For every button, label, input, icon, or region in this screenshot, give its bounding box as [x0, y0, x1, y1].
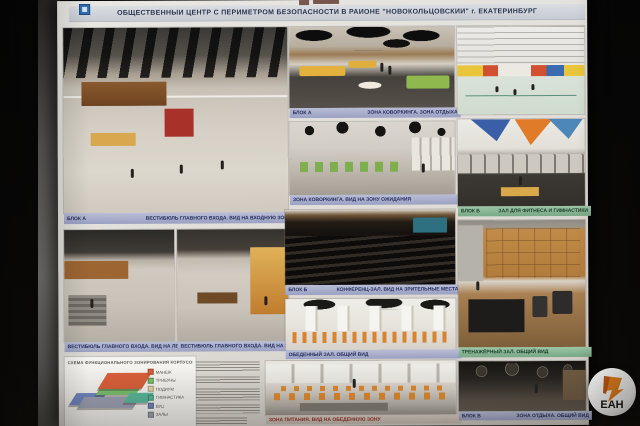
black-mat: [469, 299, 525, 332]
render-lobby-main: [63, 27, 288, 213]
green-sofa: [407, 75, 450, 89]
photo-frame: ОБЩЕСТВЕННЫЙ ЦЕНТР С ПЕРИМЕТРОМ БЕЗОПАСН…: [0, 0, 640, 426]
window-wall: [266, 364, 456, 383]
caption-coworking: БЛОК А ЗОНА КОВОРКИНГА. ЗОНА ОТДЫХА: [290, 107, 461, 118]
seat-rows: [285, 235, 455, 285]
render-cafeteria: [266, 360, 456, 415]
person-silhouette: [388, 66, 391, 75]
staircase: [69, 295, 107, 327]
caption-lobby-main: БЛОК А ВЕСТИБЮЛЬ ГЛАВНОГО ВХОДА. ВИД НА …: [64, 212, 294, 224]
person-silhouette: [180, 164, 183, 173]
reception-counter: [91, 133, 136, 146]
orange-chairs: [281, 385, 444, 391]
gray-wall: [458, 225, 484, 281]
block-label: БЛОК Б: [288, 287, 307, 293]
caption-auditorium: БЛОК Б КОНФЕРЕНЦ-ЗАЛ. ВИД НА ЗРИТЕЛЬНЫЕ …: [285, 284, 461, 295]
ceiling-panels: [63, 27, 287, 78]
window-wall: [458, 154, 585, 174]
render-coworking: [289, 26, 454, 108]
person-silhouette: [535, 384, 538, 393]
person-silhouette: [422, 164, 425, 173]
functional-scheme-panel: СХЕМА ФУНКЦИОНАЛЬНОГО ЗОНИРОВАНИЯ КОРПУС…: [65, 357, 196, 426]
render-lobby-stairs: [64, 230, 174, 342]
person-silhouette: [380, 63, 383, 72]
description-text-block: [196, 361, 260, 426]
legend-item: ГИМНАСТИКА: [148, 394, 192, 400]
ean-text: ЕАН: [600, 399, 623, 411]
caption-text: ЗОНА ПИТАНИЯ. ВИД НА ОБЕДЕННУЮ ЗОНУ: [269, 416, 381, 422]
ceiling-clouds: [289, 26, 454, 51]
paragraph: [196, 361, 260, 372]
exercise-machine: [532, 296, 547, 316]
color-banners: [457, 65, 584, 77]
wood-wall: [64, 261, 128, 279]
legend-swatch: [148, 403, 154, 409]
red-kiosk: [164, 109, 193, 137]
exercise-machine: [552, 291, 572, 314]
window-wall: [412, 137, 455, 170]
wood-panel-wall: [486, 227, 580, 278]
caption-gym: ТРЕНАЖЁРНЫЙ ЗАЛ. ОБЩИЙ ВИД: [459, 347, 592, 358]
render-auditorium: [285, 209, 455, 285]
person-silhouette: [221, 161, 224, 170]
ceiling-mural-triangle: [549, 119, 583, 139]
tape-mark: [299, 0, 309, 5]
legend-swatch: [148, 377, 154, 383]
render-fitness-hall: [458, 119, 585, 207]
poster-title-bar: ОБЩЕСТВЕННЫЙ ЦЕНТР С ПЕРИМЕТРОМ БЕЗОПАСН…: [69, 4, 585, 22]
round-table: [359, 82, 382, 89]
wood-wall: [81, 81, 166, 105]
paragraph: [196, 388, 260, 400]
gray-carpet: [300, 403, 387, 411]
ean-watermark: ЕАН: [586, 366, 638, 422]
render-gym: [458, 220, 586, 348]
stage-screen: [413, 217, 447, 232]
orange-wall: [250, 247, 288, 314]
render-dark-hall: [459, 361, 586, 412]
caption-text: ЗОНА КОВОРКИНГА. ВИД НА ЗОНУ ОЖИДАНИЯ: [293, 197, 411, 204]
caption-text: ЗАЛ ДЛЯ ФИТНЕСА И ГИМНАСТИКИ: [498, 208, 588, 214]
caption-dining: ОБЕДЕННЫЙ ЗАЛ. ОБЩИЙ ВИД: [286, 349, 462, 359]
caption-text: ВЕСТИБЮЛЬ ГЛАВНОГО ВХОДА. ВИД НА ЗОНУ РЕ…: [181, 343, 295, 350]
render-dining-hall: [285, 298, 455, 350]
ceiling-trusses: [457, 26, 584, 64]
legend-swatch: [148, 394, 154, 400]
caption-text: ТРЕНАЖЁРНЫЙ ЗАЛ. ОБЩИЙ ВИД: [462, 349, 549, 355]
yellow-mat: [501, 187, 539, 196]
caption-text: ВЕСТИБЮЛЬ ГЛАВНОГО ВХОДА. ВИД НА ЛЕСТНИЦ…: [68, 344, 181, 351]
render-lobby-reception: [177, 229, 288, 341]
person-silhouette: [131, 168, 134, 177]
caption-cafeteria: ЗОНА ПИТАНИЯ. ВИД НА ОБЕДЕННУЮ ЗОНУ: [266, 414, 462, 424]
block-label: БЛОК В: [462, 413, 481, 419]
legend-item: ЗАЛЫ: [148, 411, 192, 417]
caption-lobby-reception: ВЕСТИБЮЛЬ ГЛАВНОГО ВХОДА. ВИД НА ЗОНУ РЕ…: [178, 341, 295, 352]
ceiling-mural-triangle: [470, 119, 510, 141]
institute-logo-icon: [79, 4, 90, 15]
legend-item: ПОДИУМ: [148, 386, 192, 392]
legend-item: ВУЦ: [148, 403, 192, 409]
white-columns: [285, 306, 455, 331]
court-line: [465, 95, 577, 96]
reception-desk: [197, 292, 237, 303]
presentation-poster: ОБЩЕСТВЕННЫЙ ЦЕНТР С ПЕРИМЕТРОМ БЕЗОПАСН…: [57, 0, 589, 426]
person-silhouette: [513, 90, 516, 96]
caption-text: ОБЕДЕННЫЙ ЗАЛ. ОБЩИЙ ВИД: [289, 351, 369, 357]
render-lounge: [290, 121, 455, 195]
render-sport-hall: [457, 26, 584, 115]
block-label: БЛОК А: [67, 216, 86, 222]
caption-fitness: БЛОК Б ЗАЛ ДЛЯ ФИТНЕСА И ГИМНАСТИКИ: [458, 206, 591, 217]
caption-text: ЗОНА КОВОРКИНГА. ЗОНА ОТДЫХА: [367, 109, 457, 115]
person-silhouette: [476, 281, 479, 290]
orange-chairs: [292, 331, 448, 343]
legend-item: ТРИБУНЫ: [148, 377, 192, 383]
legend-swatch: [148, 411, 154, 417]
legend-swatch: [148, 386, 154, 392]
block-label: БЛОК Б: [461, 208, 480, 214]
paragraph: [196, 404, 260, 413]
green-chairs-row: [300, 162, 402, 173]
paragraph: [196, 417, 247, 424]
poster-title: ОБЩЕСТВЕННЫЙ ЦЕНТР С ПЕРИМЕТРОМ БЕЗОПАСН…: [69, 8, 585, 17]
paragraph: [196, 376, 260, 384]
wood-wall: [563, 370, 586, 400]
ean-logo-icon: ЕАН: [588, 368, 636, 416]
scheme-block-orange: [98, 373, 152, 389]
tape-mark: [313, 0, 339, 4]
legend-item: МАНЕЖ: [148, 369, 192, 375]
yellow-sofa: [299, 66, 345, 77]
scheme-legend: МАНЕЖ ТРИБУНЫ ПОДИУМ ГИМНАСТИКА ВУЦ ЗАЛЫ: [148, 369, 192, 420]
person-silhouette: [264, 296, 267, 305]
scheme-title: СХЕМА ФУНКЦИОНАЛЬНОГО ЗОНИРОВАНИЯ КОРПУС…: [68, 360, 193, 366]
orange-chairs: [273, 393, 448, 400]
person-silhouette: [531, 84, 534, 90]
caption-lobby-stairs: ВЕСТИБЮЛЬ ГЛАВНОГО ВХОДА. ВИД НА ЛЕСТНИЦ…: [65, 342, 181, 353]
block-label: БЛОК А: [293, 110, 312, 116]
ceiling-mural-triangle: [515, 119, 553, 145]
caption-text: ВЕСТИБЮЛЬ ГЛАВНОГО ВХОДА. ВИД НА ВХОДНУЮ…: [146, 215, 291, 222]
caption-lounge: ЗОНА КОВОРКИНГА. ВИД НА ЗОНУ ОЖИДАНИЯ: [290, 194, 461, 205]
caption-text: КОНФЕРЕНЦ-ЗАЛ. ВИД НА ЗРИТЕЛЬНЫЕ МЕСТА: [337, 286, 459, 293]
caption-dark-hall: БЛОК В ЗОНА ОТДЫХА. ОБЩИЙ ВИД: [459, 411, 592, 421]
caption-text: ЗОНА ОТДЫХА. ОБЩИЙ ВИД: [516, 412, 589, 418]
legend-swatch: [148, 369, 154, 375]
yellow-sofa: [349, 61, 377, 68]
person-silhouette: [496, 86, 499, 92]
person-silhouette: [519, 177, 522, 186]
